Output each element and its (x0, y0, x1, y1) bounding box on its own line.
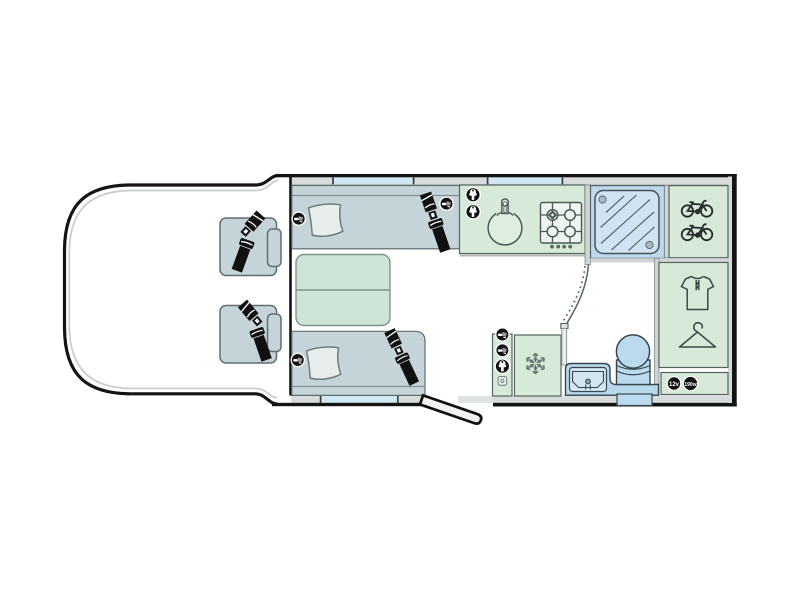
svg-text:12v: 12v (669, 382, 680, 388)
svg-text:190w: 190w (684, 382, 696, 388)
